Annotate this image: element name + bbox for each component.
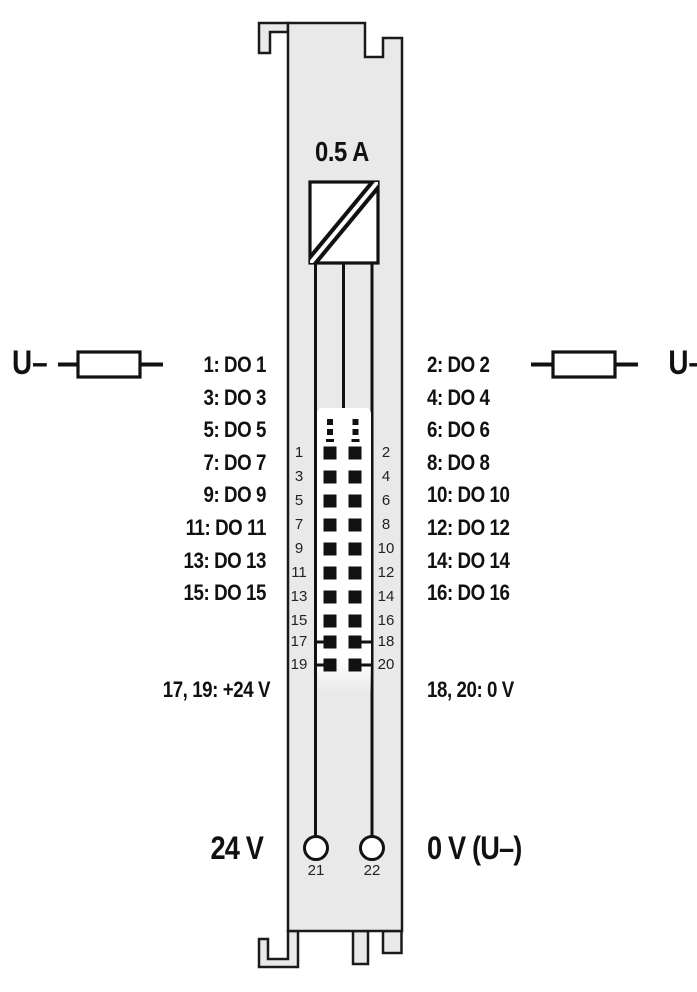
channel-label: 13: DO 13	[142, 545, 266, 578]
power-label-right: 18, 20: 0 V	[427, 677, 572, 703]
pin-number: 10	[371, 540, 401, 558]
connection-diagram: 0.5 A U– U– 1: DO 1 3: DO 3 5: DO 5 7: D…	[0, 0, 697, 992]
channel-label: 16: DO 16	[427, 577, 563, 610]
pin-number: 18	[371, 633, 401, 651]
channel-label: 8: DO 8	[427, 447, 563, 480]
pin-number: 8	[371, 516, 401, 534]
channel-label: 14: DO 14	[427, 545, 563, 578]
channel-label: 3: DO 3	[142, 382, 266, 415]
bottom-supply-label-right: 0 V (U–)	[427, 830, 580, 866]
terminal-number-22: 22	[357, 863, 387, 879]
pin-number: 7	[284, 516, 314, 534]
pin-number: 11	[284, 564, 314, 582]
supply-label-right: U–	[655, 346, 697, 380]
pin-numbers-right: 2 4 6 8 10 12 14 16 18 20	[371, 0, 401, 700]
pin-number: 12	[371, 564, 401, 582]
channel-label: 11: DO 11	[142, 512, 266, 545]
pin-number: 3	[284, 468, 314, 486]
pin-number: 4	[371, 468, 401, 486]
terminal-number-21: 21	[301, 863, 331, 879]
channel-label: 5: DO 5	[142, 414, 266, 447]
pin-number: 15	[284, 612, 314, 630]
pin-number: 20	[371, 656, 401, 674]
channel-label: 10: DO 10	[427, 479, 563, 512]
channel-labels-left: 1: DO 1 3: DO 3 5: DO 5 7: DO 7 9: DO 9 …	[120, 349, 266, 610]
pin-number: 16	[371, 612, 401, 630]
channel-label: 1: DO 1	[142, 349, 266, 382]
pin-number: 6	[371, 492, 401, 510]
channel-label: 12: DO 12	[427, 512, 563, 545]
pin-number: 5	[284, 492, 314, 510]
pin-number: 9	[284, 540, 314, 558]
channel-labels-right: 2: DO 2 4: DO 4 6: DO 6 8: DO 8 10: DO 1…	[427, 349, 587, 610]
pin-number: 14	[371, 588, 401, 606]
supply-label-left: U–	[12, 346, 61, 380]
channel-label: 15: DO 15	[142, 577, 266, 610]
pin-number: 13	[284, 588, 314, 606]
bottom-supply-label-left: 24 V	[153, 830, 264, 866]
pin-number: 2	[371, 444, 401, 462]
pin-number: 1	[284, 444, 314, 462]
power-label-left: 17, 19: +24 V	[143, 677, 271, 703]
pin-number: 17	[284, 633, 314, 651]
channel-label: 2: DO 2	[427, 349, 563, 382]
channel-label: 9: DO 9	[142, 479, 266, 512]
channel-label: 4: DO 4	[427, 382, 563, 415]
bottom-tab-2	[383, 931, 402, 953]
bottom-tab-1	[353, 931, 368, 964]
terminal-22-circle	[361, 837, 384, 860]
bottom-left-mount-foot	[259, 931, 298, 967]
channel-label: 6: DO 6	[427, 414, 563, 447]
fuse-icon	[308, 179, 380, 266]
pin-numbers-left: 1 3 5 7 9 11 13 15 17 19	[284, 0, 314, 700]
terminal-21-circle	[305, 837, 328, 860]
channel-label: 7: DO 7	[142, 447, 266, 480]
pin-number: 19	[284, 656, 314, 674]
